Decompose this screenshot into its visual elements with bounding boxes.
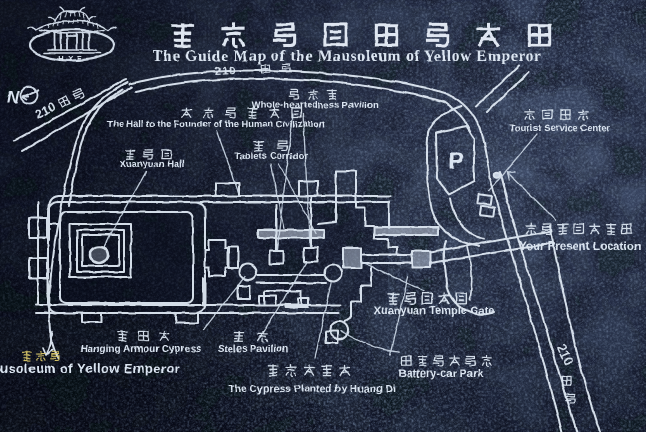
svg-text:Xuanyuan Temple Gate: Xuanyuan Temple Gate [374, 305, 495, 317]
svg-text:The Cypress Planted by Huang D: The Cypress Planted by Huang Di [228, 383, 396, 395]
svg-text:Tablets Corridor: Tablets Corridor [234, 151, 307, 162]
svg-text:Xuanyuan Hall: Xuanyuan Hall [119, 159, 184, 170]
svg-text:Tourist Service Center: Tourist Service Center [510, 123, 611, 134]
svg-text:Hanging Armour Cypress: Hanging Armour Cypress [81, 344, 202, 355]
svg-text:P: P [448, 148, 464, 175]
svg-text:N: N [7, 89, 20, 107]
svg-text:Your Present Location: Your Present Location [519, 241, 641, 253]
svg-text:Whole-heartedness Pavilion: Whole-heartedness Pavilion [252, 100, 379, 111]
svg-text:Mausoleum of Yellow Emperor: Mausoleum of Yellow Emperor [0, 361, 180, 376]
svg-text:The Guide Map of the Mausoleum: The Guide Map of the Mausoleum of Yellow… [152, 48, 541, 65]
svg-text:Battery-car Park: Battery-car Park [399, 368, 485, 380]
svg-text:Steles Pavilion: Steles Pavilion [218, 344, 289, 355]
svg-text:210: 210 [215, 65, 237, 78]
svg-text:HYE: HYE [58, 54, 85, 63]
svg-text:The Hall to the Founder of the: The Hall to the Founder of the Human Civ… [107, 119, 325, 129]
